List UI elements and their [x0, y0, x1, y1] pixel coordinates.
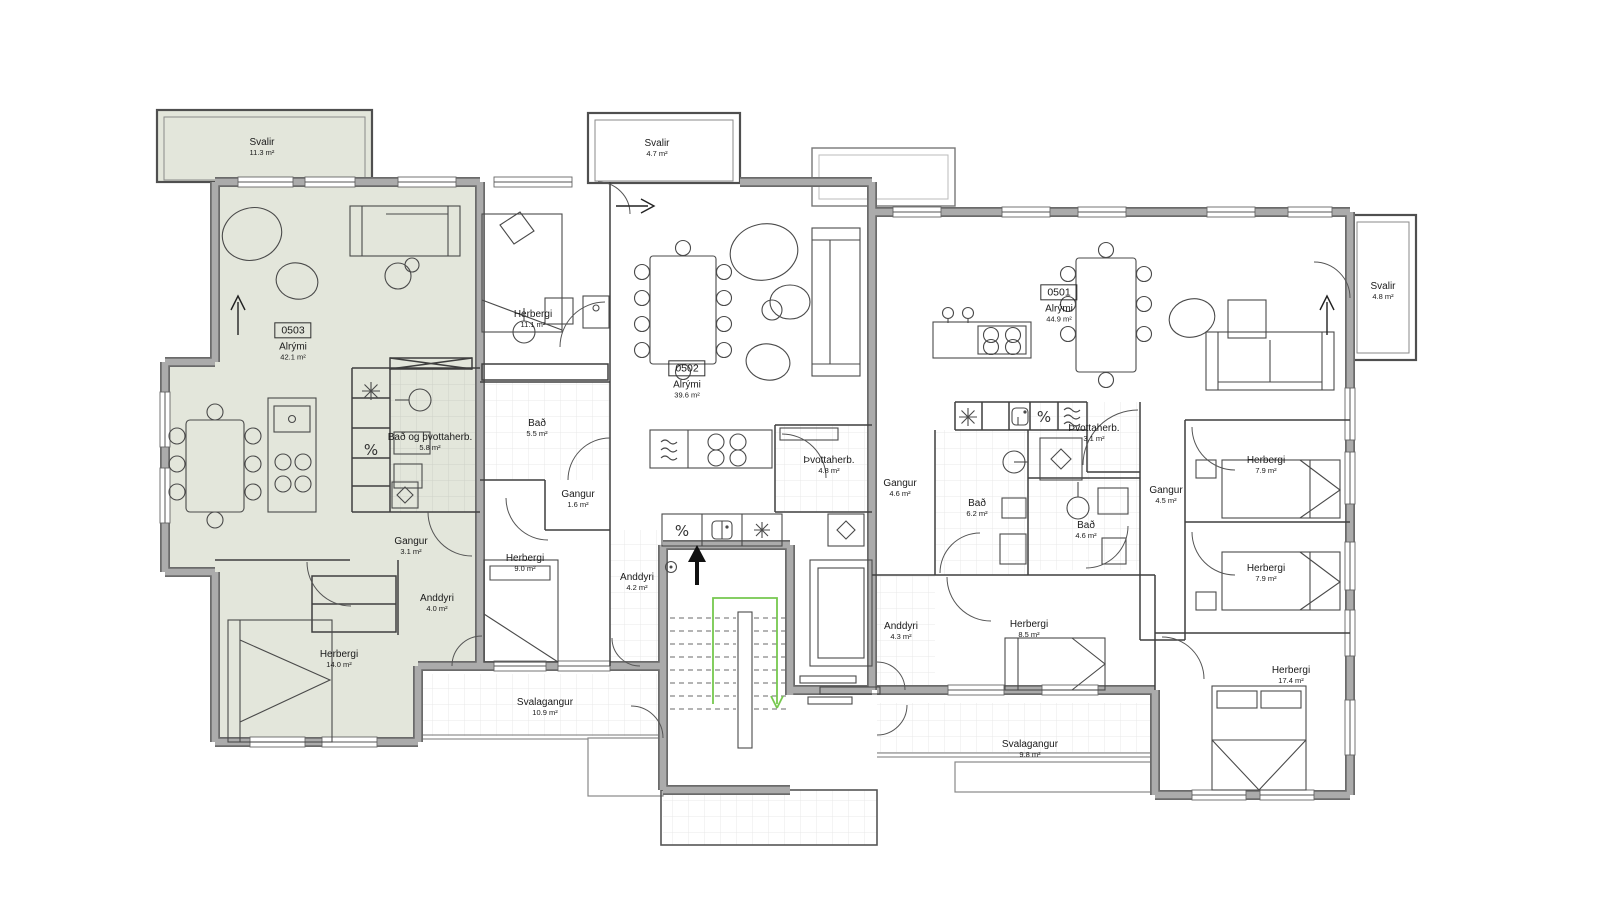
up-arrow-0501 — [1320, 296, 1334, 335]
sofa — [812, 228, 860, 376]
entry-arrow-0502 — [616, 199, 654, 213]
floor-plan-drawing: % — [0, 0, 1600, 924]
lounge-chair — [770, 285, 810, 319]
stair-up-arrow — [688, 545, 706, 585]
nightstand — [1196, 460, 1216, 478]
staircase — [666, 545, 789, 748]
dining-table — [650, 256, 716, 364]
fridge-icon — [362, 382, 380, 400]
lounge-chair — [1165, 294, 1219, 342]
plant-icon — [943, 308, 974, 324]
double-bed — [1212, 686, 1306, 790]
unit-number-0503: 0503 — [274, 322, 311, 338]
washer-icon: % — [1037, 408, 1051, 426]
dining-table — [1076, 258, 1136, 372]
shower — [583, 296, 609, 328]
bed — [1222, 460, 1340, 518]
dryer-icon — [712, 521, 732, 539]
floor-plan: % — [0, 0, 1600, 924]
balcony-0503 — [157, 110, 372, 182]
sink-icon — [1012, 408, 1028, 425]
washer-icon: % — [675, 522, 689, 540]
balcony-0502 — [588, 113, 740, 183]
washer-icon: % — [364, 441, 378, 459]
bed — [1222, 552, 1340, 610]
balcony-0501 — [1350, 215, 1416, 360]
bed — [484, 560, 558, 662]
unit-number-0502: 0502 — [668, 360, 705, 376]
bed — [1005, 638, 1105, 690]
lounge-chair — [725, 218, 803, 287]
dishwasher-icon — [661, 440, 677, 460]
dining-chairs — [635, 241, 732, 380]
fridge-icon — [959, 408, 977, 426]
unit-label-0502: 0502 Alrými39.6 m² — [668, 360, 705, 399]
bed — [482, 214, 562, 332]
stair-stringer — [738, 612, 752, 748]
unit-label-0501: 0501 Alrými44.9 m² — [1040, 284, 1077, 323]
unit-label-0503: 0503 Alrými42.1 m² — [274, 322, 311, 361]
unit-number-0501: 0501 — [1040, 284, 1077, 300]
vent-icon — [828, 514, 864, 546]
fridge-icon — [754, 522, 770, 538]
nightstand — [1196, 592, 1216, 610]
